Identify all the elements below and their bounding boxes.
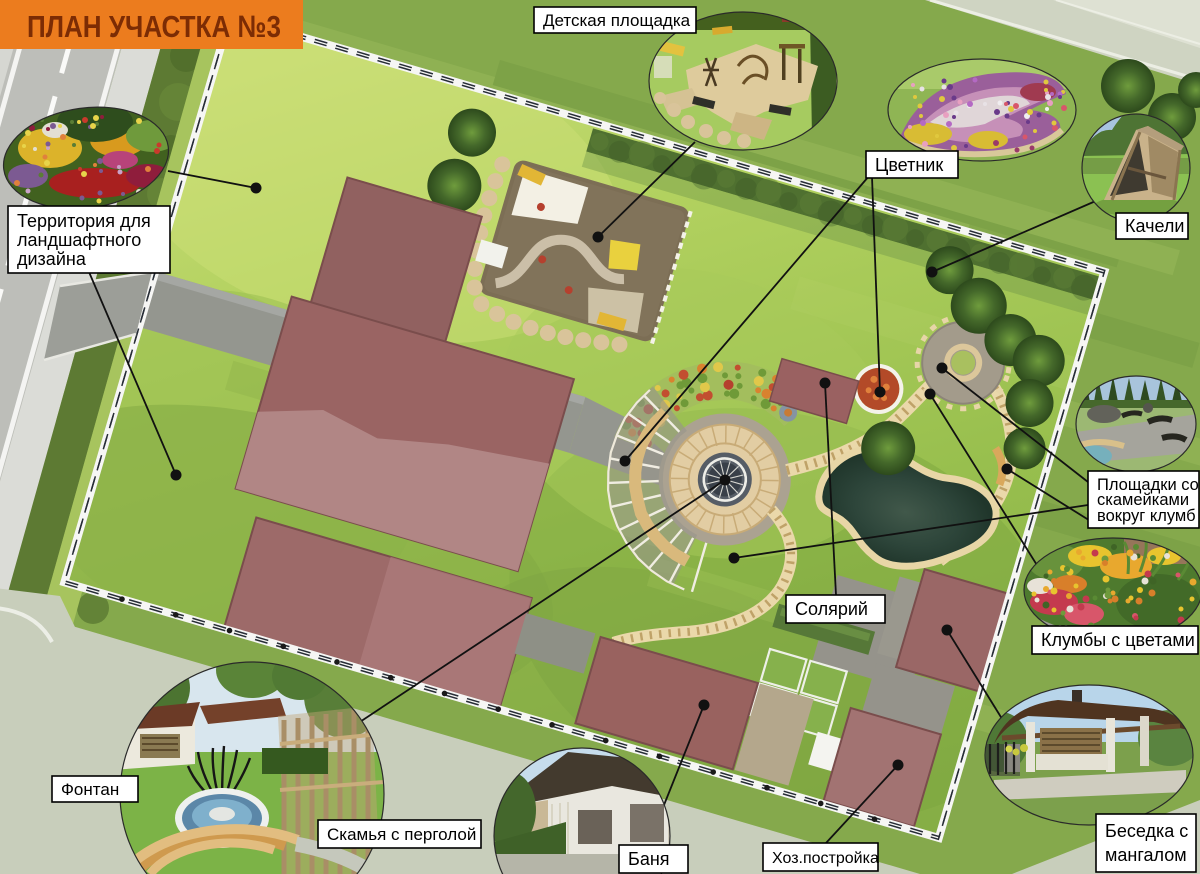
svg-text:Фонтан: Фонтан [61, 780, 119, 799]
svg-text:Беседка с: Беседка с [1105, 821, 1188, 841]
svg-text:Качели: Качели [1125, 216, 1184, 236]
svg-text:Детская площадка: Детская площадка [543, 11, 691, 30]
svg-text:Клумбы с цветами: Клумбы с цветами [1041, 630, 1195, 650]
svg-text:Скамья с перголой: Скамья с перголой [327, 825, 476, 844]
svg-text:Солярий: Солярий [795, 599, 868, 619]
svg-text:Цветник: Цветник [875, 155, 943, 175]
svg-text:Территория для: Территория для [17, 211, 151, 231]
svg-text:Хоз.постройка: Хоз.постройка [772, 850, 879, 867]
svg-text:Баня: Баня [628, 849, 670, 869]
svg-text:мангалом: мангалом [1105, 845, 1187, 865]
svg-text:вокруг клумб: вокруг клумб [1097, 507, 1196, 525]
svg-text:ПЛАН УЧАСТКА №3: ПЛАН УЧАСТКА №3 [27, 9, 281, 44]
svg-text:дизайна: дизайна [17, 249, 87, 269]
svg-text:ландшафтного: ландшафтного [17, 230, 141, 250]
